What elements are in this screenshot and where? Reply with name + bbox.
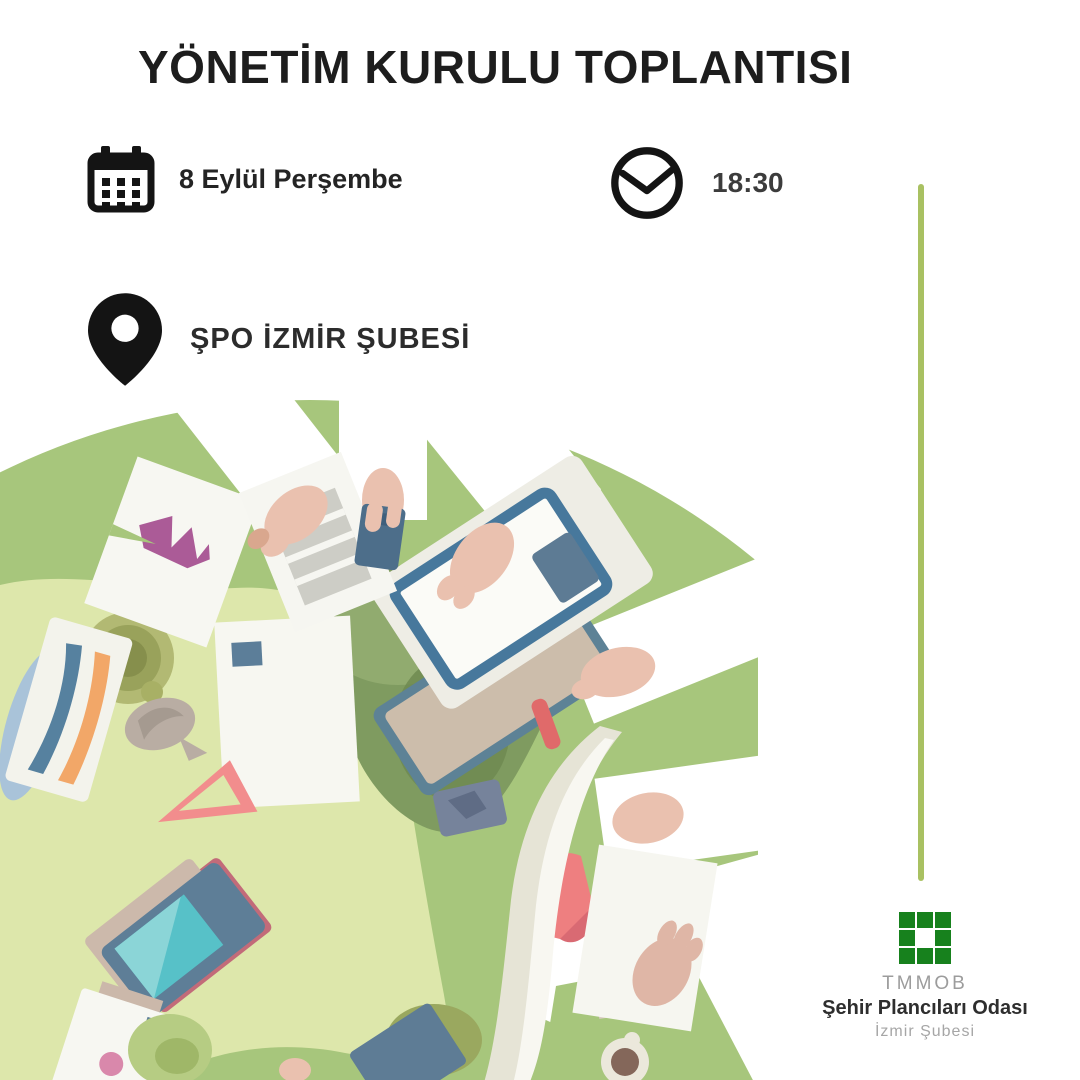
location-pin-icon — [88, 293, 162, 386]
meeting-poster: YÖNETİM KURULU TOPLANTISI 8 Eylül Perşem… — [0, 0, 1080, 1080]
org-branch: İzmir Şubesi — [790, 1023, 1060, 1041]
date-row: 8 Eylül Perşembe — [85, 143, 403, 215]
org-name: Şehir Plancıları Odası — [790, 997, 1060, 1020]
logo-cell — [917, 948, 933, 964]
logo-cell — [935, 930, 951, 946]
time-label: 18:30 — [712, 167, 784, 199]
tmmob-logo-grid-icon — [899, 912, 951, 964]
clock-icon — [608, 144, 686, 222]
logo-cell — [935, 948, 951, 964]
location-row: ŞPO İZMİR ŞUBESİ — [88, 292, 470, 386]
accent-line — [918, 184, 924, 881]
calendar-icon — [85, 143, 157, 215]
page-title: YÖNETİM KURULU TOPLANTISI — [138, 40, 852, 94]
logo-cell — [917, 912, 933, 928]
location-label: ŞPO İZMİR ŞUBESİ — [190, 323, 470, 356]
time-row: 18:30 — [608, 145, 784, 221]
date-label: 8 Eylül Perşembe — [179, 164, 403, 195]
org-logo-block: TMMOB Şehir Plancıları Odası İzmir Şubes… — [790, 912, 1060, 1041]
logo-cell — [899, 912, 915, 928]
logo-cell-hole — [917, 930, 933, 946]
logo-cell — [899, 948, 915, 964]
logo-cell — [899, 930, 915, 946]
org-acronym: TMMOB — [790, 973, 1060, 995]
coffee-cup — [611, 1048, 639, 1076]
logo-cell — [935, 912, 951, 928]
